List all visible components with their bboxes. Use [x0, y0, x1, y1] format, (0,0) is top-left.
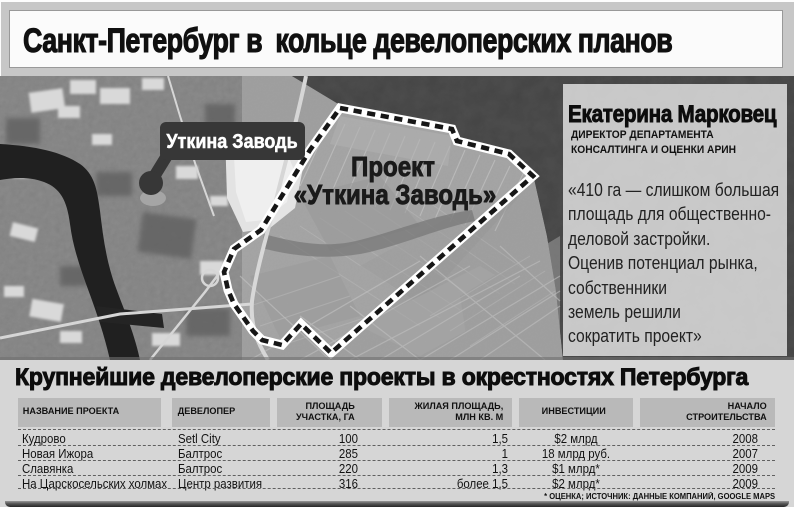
svg-text:Уткина Заводь: Уткина Заводь — [166, 131, 297, 153]
svg-text:«Уткина Заводь»: «Уткина Заводь» — [294, 178, 496, 210]
